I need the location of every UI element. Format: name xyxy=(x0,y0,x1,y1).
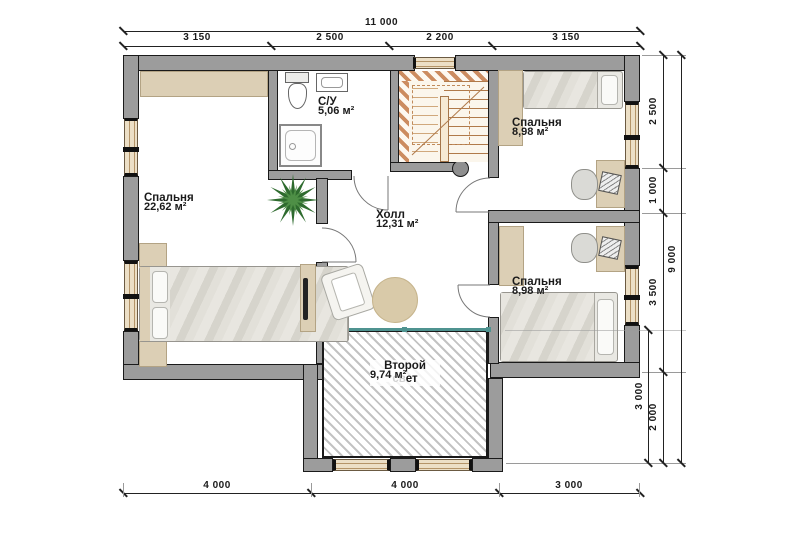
dim-label-top-a: 3 150 xyxy=(147,32,247,44)
room-area: 12,31 м² xyxy=(376,218,418,231)
extension-line xyxy=(506,463,686,464)
dim-label-right-b: 1 000 xyxy=(648,150,660,230)
floor-plan: Спальня 22,62 м² С/У 5,06 м² Холл 12,31 … xyxy=(0,0,800,533)
door-swing-bedroom-top-right xyxy=(456,178,490,212)
dim-label-right-void: 3 000 xyxy=(634,356,646,436)
dim-label-top-b: 2 500 xyxy=(280,32,380,44)
door-swing-bedroom-bottom-right xyxy=(458,285,490,317)
door-swing-bathroom xyxy=(354,176,388,210)
extension-line xyxy=(639,483,640,497)
dim-label-right-a: 2 500 xyxy=(648,71,660,151)
dim-line-right-total xyxy=(681,55,682,463)
room-area: 8,98 м² xyxy=(512,285,548,298)
extension-line xyxy=(123,483,124,497)
room-area: 22,62 м² xyxy=(144,201,186,214)
dim-line-top-segments xyxy=(123,46,640,47)
room-area: 9,74 м² xyxy=(370,369,406,382)
stair-direction-line xyxy=(412,87,484,155)
room-area: 8,98 м² xyxy=(512,126,548,139)
dim-label-right-d: 2 000 xyxy=(648,377,660,457)
dim-label-top-d: 3 150 xyxy=(516,32,616,44)
dim-label-bottom-c: 3 000 xyxy=(519,480,619,492)
extension-line xyxy=(311,483,312,497)
dim-label-top-c: 2 200 xyxy=(390,32,490,44)
dim-line-right-segments xyxy=(663,55,664,463)
dim-label-bottom-b: 4 000 xyxy=(355,480,455,492)
room-area: 5,06 м² xyxy=(318,105,354,118)
dim-label-right-c: 3 500 xyxy=(648,252,660,332)
dim-line-bottom xyxy=(123,493,640,494)
dim-label-bottom-a: 4 000 xyxy=(167,480,267,492)
dim-label-right-total: 9 000 xyxy=(667,219,679,299)
door-swings xyxy=(0,0,800,533)
dim-label-top-total: 11 000 xyxy=(123,17,640,29)
door-swing-bedroom-left xyxy=(322,228,356,262)
extension-line xyxy=(499,483,500,497)
